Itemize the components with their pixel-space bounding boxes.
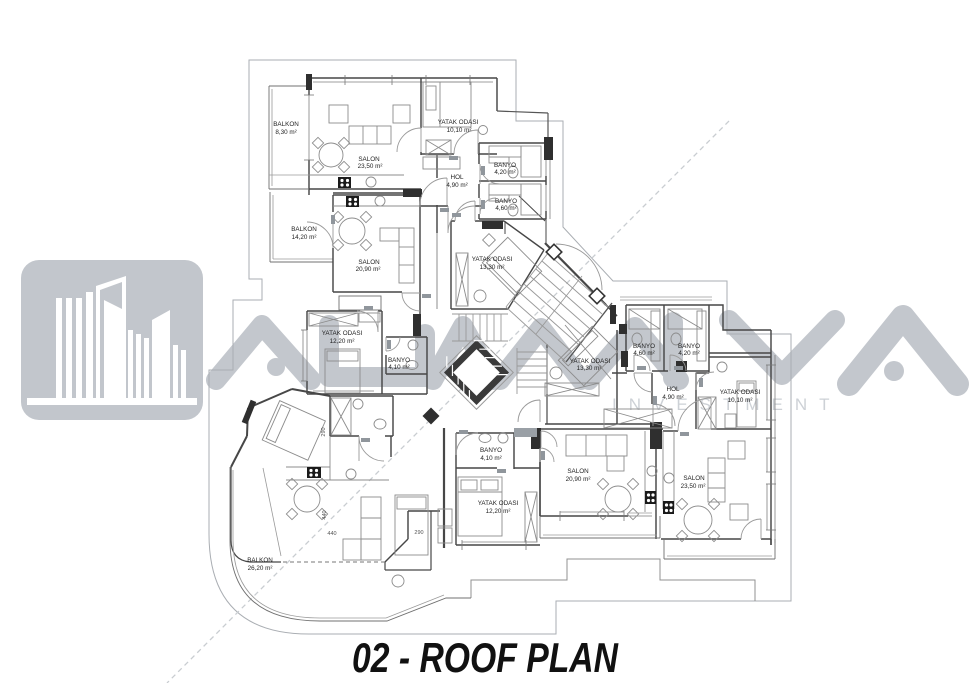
svg-text:BALKON: BALKON xyxy=(273,121,299,128)
svg-text:YATAK ODASI: YATAK ODASI xyxy=(438,119,479,126)
svg-text:14,20 m²: 14,20 m² xyxy=(292,234,317,241)
svg-text:YATAK ODASI: YATAK ODASI xyxy=(472,256,513,263)
svg-text:440: 440 xyxy=(322,510,328,519)
svg-text:BANYO: BANYO xyxy=(494,162,516,169)
svg-text:02 - ROOF PLAN: 02 - ROOF PLAN xyxy=(352,634,619,681)
svg-text:YATAK ODASI: YATAK ODASI xyxy=(322,330,363,337)
svg-text:BALKON: BALKON xyxy=(247,557,273,564)
svg-text:8,30 m²: 8,30 m² xyxy=(275,129,296,136)
svg-text:YATAK ODASI: YATAK ODASI xyxy=(478,500,519,507)
svg-text:12,20 m²: 12,20 m² xyxy=(486,508,511,515)
svg-text:12,20 m²: 12,20 m² xyxy=(330,338,355,345)
svg-text:SALON: SALON xyxy=(567,468,589,475)
svg-text:HOL: HOL xyxy=(667,386,680,393)
svg-text:BANYO: BANYO xyxy=(495,198,517,205)
svg-text:20,90 m²: 20,90 m² xyxy=(356,266,381,273)
svg-text:YATAK ODASI: YATAK ODASI xyxy=(720,389,761,396)
svg-text:4,60 m²: 4,60 m² xyxy=(495,205,516,212)
svg-text:13,30 m²: 13,30 m² xyxy=(577,365,602,372)
svg-text:10,10 m²: 10,10 m² xyxy=(728,397,753,404)
svg-text:440: 440 xyxy=(327,531,336,537)
svg-text:23,50 m²: 23,50 m² xyxy=(358,163,383,170)
svg-text:SALON: SALON xyxy=(358,156,380,163)
svg-text:290: 290 xyxy=(321,427,327,436)
svg-text:BANYO: BANYO xyxy=(633,343,655,350)
svg-text:4,90 m²: 4,90 m² xyxy=(662,394,683,401)
svg-text:26,20 m²: 26,20 m² xyxy=(248,565,273,572)
svg-text:YATAK ODASI: YATAK ODASI xyxy=(570,358,611,365)
svg-text:10,10 m²: 10,10 m² xyxy=(447,127,472,134)
svg-text:BALKON: BALKON xyxy=(291,226,317,233)
svg-text:BANYO: BANYO xyxy=(678,343,700,350)
svg-text:23,50 m²: 23,50 m² xyxy=(681,483,706,490)
svg-text:BANYO: BANYO xyxy=(388,357,410,364)
svg-text:20,90 m²: 20,90 m² xyxy=(566,476,591,483)
svg-text:4,10 m²: 4,10 m² xyxy=(388,364,409,371)
svg-text:SALON: SALON xyxy=(358,259,380,266)
svg-text:4,20 m²: 4,20 m² xyxy=(494,169,515,176)
svg-text:4,90 m²: 4,90 m² xyxy=(446,182,467,189)
svg-text:4,10 m²: 4,10 m² xyxy=(480,455,501,462)
svg-text:BANYO: BANYO xyxy=(480,447,502,454)
svg-text:290: 290 xyxy=(414,530,423,536)
svg-text:13,30 m²: 13,30 m² xyxy=(480,264,505,271)
svg-text:HOL: HOL xyxy=(451,174,464,181)
svg-text:4,60 m²: 4,60 m² xyxy=(633,350,654,357)
svg-text:4,20 m²: 4,20 m² xyxy=(678,350,699,357)
svg-text:SALON: SALON xyxy=(683,475,705,482)
